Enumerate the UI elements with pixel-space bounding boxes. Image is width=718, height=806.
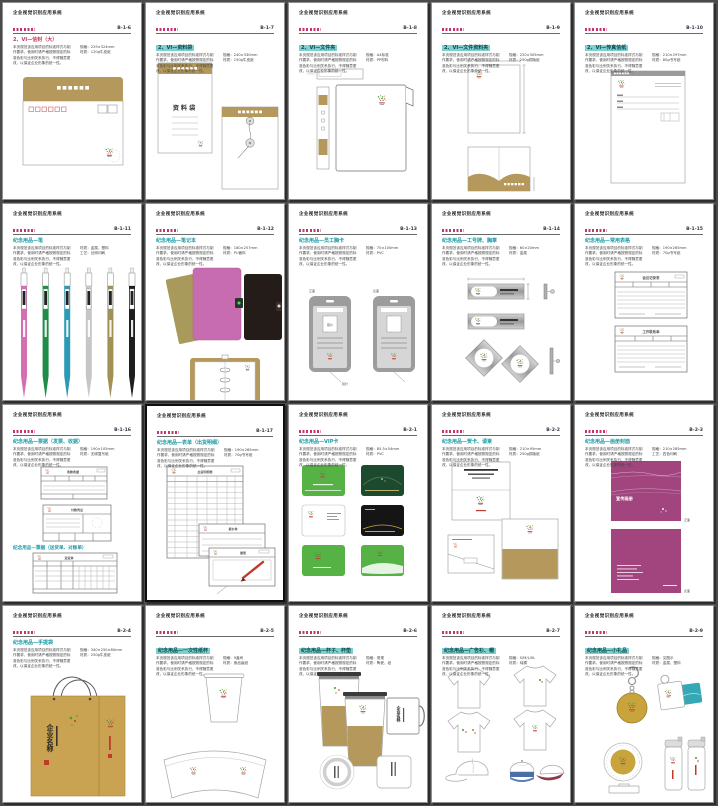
page-header: 企业视觉识别应用系统B-1-11纪念用品—笔本页规范该应用项目的标准样式与制作要… [3,204,141,268]
page-code: B-1-10 [686,26,703,31]
front-label: 正面 [684,518,690,522]
section-dots [585,28,607,31]
manual-title: 企业视觉识别应用系统 [299,211,417,217]
form3-title: 便笺 [240,550,246,555]
page-header: 企业视觉识别应用系统B-2-7纪念用品—广告衫、帽本页规范该应用项目的标准样式与… [432,606,570,678]
manual-page[interactable]: 企业视觉识别应用系统B-1-16纪念用品—票据（发票、收据）本页规范该应用项目的… [2,404,142,602]
page-title: 2、VI—文件夹 [299,45,337,51]
spec-line: 材质：PVC [366,251,398,257]
manual-page[interactable]: 企业视觉识别应用系统B-1-82、VI—文件夹本页规范该应用项目的标准样式与制作… [288,2,428,200]
receipt2-title: 付款凭证 [71,507,83,512]
header-rule [299,33,417,34]
spec-line: 材质：PP材料 [366,58,389,64]
section-dots [442,229,464,232]
manual-title: 企业视觉识别应用系统 [442,10,560,16]
mug-brand-text: 企业名称 [396,705,402,723]
bag-brand-text: 企业名称 [46,723,55,753]
receipt3-title: 送货单 [63,555,73,560]
manual-page[interactable]: 企业视觉识别应用系统B-1-72、VI—资料袋本页规范该应用项目的标准样式与制作… [145,2,285,200]
mock-letterhead [575,57,713,199]
page-title: 纪念用品—贺卡、请柬 [442,439,560,445]
photo-label: 照片 [327,322,333,327]
manual-title: 企业视觉识别应用系统 [156,211,274,217]
cover-title: 宣传画册 [616,495,634,502]
page-specs: 规格：190×265mm材质：70g书写纸 [224,448,259,470]
page-description: 本页规范该应用项目的标准样式与制作要求，使用时请严格按照规定的标准色彩与比例关系… [585,53,645,75]
spec-line: 材质：纯棉 [509,661,535,667]
mock-cups: 企业名称 [289,660,427,802]
header-rule [156,33,274,34]
header-rule [585,33,703,34]
section-dots [13,631,35,634]
manual-title: 企业视觉识别应用系统 [585,613,703,619]
page-code: B-2-2 [546,428,560,433]
page-specs: 规格：210×285mm工艺：四色印刷 [652,447,687,469]
page-title: 纪念用品—工号牌、胸章 [442,238,560,244]
page-title: 纪念用品—画册封面 [585,439,703,445]
page-code: B-1-12 [257,227,274,232]
mock-shopping-bag: 企业名称 [3,660,141,802]
section-dots [585,430,607,433]
spec-line: 材质：无碳复写纸 [80,452,115,458]
page-specs: 规格：190×105mm材质：无碳复写纸 [80,447,115,469]
manual-page[interactable]: 企业视觉识别应用系统B-2-5纪念用品—一次性纸杯本页规范该应用项目的标准样式与… [145,605,285,803]
manual-page[interactable]: 企业视觉识别应用系统B-1-102、VI—传真信纸本页规范该应用项目的标准样式与… [574,2,714,200]
section-dots [299,430,321,433]
page-header: 企业视觉识别应用系统B-1-72、VI—资料袋本页规范该应用项目的标准样式与制作… [146,3,284,75]
page-code: B-2-3 [689,428,703,433]
mock-paper-cup [146,660,284,802]
spec-line: 材质：80g书写纸 [652,58,687,64]
section-dots [156,229,178,232]
mock-brochure-covers: 宣传画册 正面 反面 [575,459,713,601]
table-title: 出货明细表 [197,469,213,474]
section-dots [585,229,607,232]
header-rule [299,636,417,637]
page-specs: 规格：210×95mm材质：250g铜版纸 [509,447,541,469]
page-header: 企业视觉识别应用系统B-2-2纪念用品—贺卡、请柬本页规范该应用项目的标准样式与… [432,405,570,469]
page-description: 本页规范该应用项目的标准样式与制作要求，使用时请严格按照规定的标准色彩与比例关系… [585,447,645,469]
mock-pocket-folder [432,57,570,199]
page-description: 本页规范该应用项目的标准样式与制作要求，使用时请严格按照规定的标准色彩与比例关系… [13,447,73,469]
page-title: 2、VI—文件资料夹 [442,45,490,51]
page-code: B-2-9 [689,629,703,634]
section-dots [13,28,35,31]
section-dots [442,631,464,634]
page-specs: 规格：220×305mm材质：250g铜版纸 [509,53,544,75]
manual-title: 企业视觉识别应用系统 [156,10,274,16]
page-code: B-2-4 [117,629,131,634]
page-specs: 规格：9盎司材质：食品级纸 [223,656,248,678]
manual-title: 企业视觉识别应用系统 [442,211,560,217]
page-code: B-1-7 [260,26,274,31]
page-code: B-2-5 [260,629,274,634]
header-rule [442,33,560,34]
receipt1-title: 收款收据 [67,469,79,474]
header-rule [157,436,273,437]
mock-folder [289,57,427,199]
page-specs: 规格：210×297mm材质：80g书写纸 [652,53,687,75]
spec-line: 材质：金属、塑料 [652,661,681,667]
manual-page-selected[interactable]: 企业视觉识别应用系统B-1-17纪念用品—表单（出货明细）本页规范该应用项目的标… [145,404,285,602]
page-title: 纪念用品—一次性纸杯 [156,648,210,654]
manual-title: 企业视觉识别应用系统 [13,10,131,16]
page-header: 企业视觉识别应用系统B-2-3纪念用品—画册封面本页规范该应用项目的标准样式与制… [575,405,713,469]
mock-vip-cards [289,459,427,601]
manual-page[interactable]: 企业视觉识别应用系统B-1-92、VI—文件资料夹本页规范该应用项目的标准样式与… [431,2,571,200]
page-specs: 规格：190×265mm材质：70g书写纸 [652,246,687,268]
page-description: 本页规范该应用项目的标准样式与制作要求，使用时请严格按照规定的标准色彩与比例关系… [13,648,73,670]
manual-page[interactable]: 企业视觉识别应用系统B-2-7纪念用品—广告衫、帽本页规范该应用项目的标准样式与… [431,605,571,803]
form2-title: 报价单 [228,526,237,531]
page-header: 企业视觉识别应用系统B-1-12纪念用品—笔记本本页规范该应用项目的标准样式与制… [146,204,284,268]
page-title: 纪念用品—票据（发票、收据） [13,439,131,445]
section-dots [299,631,321,634]
spec-line: 工艺：丝网印刷 [80,251,109,257]
manual-title: 企业视觉识别应用系统 [299,10,417,16]
manual-page[interactable]: 企业视觉识别应用系统B-2-1纪念用品—VIP卡本页规范该应用项目的标准样式与制… [288,404,428,602]
page-title: 纪念用品—员工胸卡 [299,238,417,244]
manual-title: 企业视觉识别应用系统 [585,10,703,16]
page-header: 企业视觉识别应用系统B-1-13纪念用品—员工胸卡本页规范该应用项目的标准样式与… [289,204,427,268]
manual-page[interactable]: 企业视觉识别应用系统B-2-4纪念用品—手提袋本页规范该应用项目的标准样式与制作… [2,605,142,803]
mock-staff-badges: 正面 反面 照片 别针 [289,258,427,400]
spec-line: 材质：250g铜版纸 [509,452,541,458]
bag-label: 资料袋 [173,104,198,112]
manual-page[interactable]: 企业视觉识别应用系统B-1-15纪念用品—常用表格本页规范该应用项目的标准样式与… [574,203,714,401]
section-dots [13,430,35,433]
page-specs: 规格：S/M/L/XL材质：纯棉 [509,656,535,678]
section-dots [157,431,179,434]
page-header: 企业视觉识别应用系统B-1-82、VI—文件夹本页规范该应用项目的标准样式与制作… [289,3,427,75]
page-header: 企业视觉识别应用系统B-1-14纪念用品—工号牌、胸章本页规范该应用项目的标准样… [432,204,570,268]
page-specs: 规格：见图示材质：金属、塑料 [652,656,681,678]
page-header: 企业视觉识别应用系统B-1-62、VI—信封（大）本页规范该应用项目的标准样式与… [3,3,141,67]
page-specs: 规格：340×250×80mm材质：250g牛皮纸 [80,648,122,670]
manual-title: 企业视觉识别应用系统 [442,412,560,418]
mock-notebooks [146,258,284,400]
page-description: 本页规范该应用项目的标准样式与制作要求，使用时请严格按照规定的标准色彩与比例关系… [299,246,359,268]
page-code: B-1-11 [114,227,131,232]
page-header: 企业视觉识别应用系统B-2-6纪念用品—杯子、杯垫本页规范该应用项目的标准样式与… [289,606,427,678]
page-description: 本页规范该应用项目的标准样式与制作要求，使用时请严格按照规定的标准色彩与比例关系… [442,656,502,678]
page-description: 本页规范该应用项目的标准样式与制作要求，使用时请严格按照规定的标准色彩与比例关系… [299,656,359,678]
page-specs: 规格：70×100mm材质：PVC [366,246,398,268]
page-title: 2、VI—传真信纸 [585,45,628,51]
page-description: 本页规范该应用项目的标准样式与制作要求，使用时请严格按照规定的标准色彩与比例关系… [442,53,502,75]
spec-line: 材质：陶瓷、纸 [366,661,391,667]
page-specs: 规格：229×324mm材质：120g牛皮纸 [80,45,115,67]
page-header: 企业视觉识别应用系统B-1-92、VI—文件资料夹本页规范该应用项目的标准样式与… [432,3,570,75]
header-rule [442,234,560,235]
section-dots [156,28,178,31]
spec-line: 材质：70g书写纸 [652,251,687,257]
mock-document-bags: 资料袋 [146,57,284,199]
page-code: B-1-15 [686,227,703,232]
page-description: 本页规范该应用项目的标准样式与制作要求，使用时请严格按照规定的标准色彩与比例关系… [157,448,217,470]
section-dots [585,631,607,634]
page-title: 纪念用品—表单（出货明细） [157,440,273,446]
page-code: B-2-7 [546,629,560,634]
manual-title: 企业视觉识别应用系统 [13,613,131,619]
page-description: 本页规范该应用项目的标准样式与制作要求，使用时请严格按照规定的标准色彩与比例关系… [156,246,216,268]
manual-page[interactable]: 企业视觉识别应用系统B-1-13纪念用品—员工胸卡本页规范该应用项目的标准样式与… [288,203,428,401]
page-description: 本页规范该应用项目的标准样式与制作要求，使用时请严格按照规定的标准色彩与比例关系… [13,45,73,67]
page-title: 纪念用品—杯子、杯垫 [299,648,353,654]
page-code: B-1-6 [117,26,131,31]
mock-detail-table: 出货明细表 报价单 便笺 [147,460,285,602]
page-description: 本页规范该应用项目的标准样式与制作要求，使用时请严格按照规定的标准色彩与比例关系… [442,447,502,469]
page-code: B-2-6 [403,629,417,634]
page-code: B-1-16 [114,428,131,433]
page-description: 本页规范该应用项目的标准样式与制作要求，使用时请严格按照规定的标准色彩与比例关系… [156,53,216,75]
section-dots [156,631,178,634]
mock-pens [3,258,141,400]
page-title: 纪念用品—手提袋 [13,640,131,646]
manual-title: 企业视觉识别应用系统 [585,412,703,418]
page-specs: 规格：240×330mm材质：150g牛皮纸 [223,53,258,75]
header-rule [13,234,131,235]
manual-page[interactable]: 企业视觉识别应用系统B-1-62、VI—信封（大）本页规范该应用项目的标准样式与… [2,2,142,200]
header-rule [156,234,274,235]
page-specs: 材质：金属、塑料工艺：丝网印刷 [80,246,109,268]
spec-line: 材质：120g牛皮纸 [80,50,115,56]
manual-page[interactable]: 企业视觉识别应用系统B-2-3纪念用品—画册封面本页规范该应用项目的标准样式与制… [574,404,714,602]
header-rule [299,234,417,235]
page-description: 本页规范该应用项目的标准样式与制作要求，使用时请严格按照规定的标准色彩与比例关系… [585,246,645,268]
manual-title: 企业视觉识别应用系统 [442,613,560,619]
header-rule [13,636,131,637]
section-dots [299,28,321,31]
manual-title: 企业视觉识别应用系统 [13,412,131,418]
manual-page[interactable]: 企业视觉识别应用系统B-2-9纪念用品—小礼品本页规范该应用项目的标准样式与制作… [574,605,714,803]
header-rule [13,33,131,34]
manual-title: 企业视觉识别应用系统 [299,613,417,619]
spec-line: 材质：食品级纸 [223,661,248,667]
spec-line: 工艺：四色印刷 [652,452,687,458]
mock-gifts [575,660,713,802]
manual-page[interactable]: 企业视觉识别应用系统B-1-12纪念用品—笔记本本页规范该应用项目的标准样式与制… [145,203,285,401]
page-code: B-1-9 [546,26,560,31]
form1-title: 会议记录表 [643,275,661,280]
page-description: 本页规范该应用项目的标准样式与制作要求，使用时请严格按照规定的标准色彩与比例关系… [13,246,73,268]
section-dots [442,28,464,31]
header-rule [585,435,703,436]
mock-shirts-caps [432,660,570,802]
manual-title: 企业视觉识别应用系统 [156,613,274,619]
page-header: 企业视觉识别应用系统B-1-17纪念用品—表单（出货明细）本页规范该应用项目的标… [147,406,283,470]
page-title: 纪念用品—笔 [13,238,131,244]
header-rule [13,435,131,436]
mock-greeting-cards [432,459,570,601]
page-code: B-1-14 [543,227,560,232]
page-code: B-1-8 [403,26,417,31]
manual-grid: 企业视觉识别应用系统B-1-62、VI—信封（大）本页规范该应用项目的标准样式与… [0,0,718,805]
form2-title: 工作联系单 [643,329,661,334]
section-dots [442,430,464,433]
second-section-title: 纪念用品—票据（送货单、对账单） [13,544,87,551]
mock-pin-badges [432,258,570,400]
header-rule [442,435,560,436]
page-title: 纪念用品—常用表格 [585,238,703,244]
page-specs: 规格：60×20mm材质：金属 [509,246,539,268]
back-label: 反面 [373,288,379,293]
spec-line: 材质：PU面料 [223,251,258,257]
page-header: 企业视觉识别应用系统B-1-15纪念用品—常用表格本页规范该应用项目的标准样式与… [575,204,713,268]
page-header: 企业视觉识别应用系统B-1-102、VI—传真信纸本页规范该应用项目的标准样式与… [575,3,713,75]
page-header: 企业视觉识别应用系统B-2-4纪念用品—手提袋本页规范该应用项目的标准样式与制作… [3,606,141,670]
page-description: 本页规范该应用项目的标准样式与制作要求，使用时请严格按照规定的标准色彩与比例关系… [299,447,359,469]
page-title: 纪念用品—笔记本 [156,238,274,244]
page-header: 企业视觉识别应用系统B-2-5纪念用品—一次性纸杯本页规范该应用项目的标准样式与… [146,606,284,678]
spec-line: 材质：250g牛皮纸 [80,653,122,659]
mock-envelope-large [3,57,141,199]
page-title: 纪念用品—VIP卡 [299,439,417,445]
page-specs: 规格：85.5×54mm材质：PVC [366,447,399,469]
manual-title: 企业视觉识别应用系统 [585,211,703,217]
page-description: 本页规范该应用项目的标准样式与制作要求，使用时请严格按照规定的标准色彩与比例关系… [156,656,216,678]
manual-title: 企业视觉识别应用系统 [157,413,273,419]
back-label: 反面 [684,588,690,593]
page-specs: 规格：常规材质：陶瓷、纸 [366,656,391,678]
manual-page[interactable]: 企业视觉识别应用系统B-2-6纪念用品—杯子、杯垫本页规范该应用项目的标准样式与… [288,605,428,803]
header-rule [585,636,703,637]
page-description: 本页规范该应用项目的标准样式与制作要求，使用时请严格按照规定的标准色彩与比例关系… [442,246,502,268]
page-specs: 规格：180×257mm材质：PU面料 [223,246,258,268]
page-code: B-1-17 [256,429,273,434]
section-dots [13,229,35,232]
spec-line: 材质：70g书写纸 [224,453,259,459]
spec-line: 材质：金属 [509,251,539,257]
page-code: B-2-1 [403,428,417,433]
manual-page[interactable]: 企业视觉识别应用系统B-1-14纪念用品—工号牌、胸章本页规范该应用项目的标准样… [431,203,571,401]
page-description: 本页规范该应用项目的标准样式与制作要求，使用时请严格按照规定的标准色彩与比例关系… [299,53,359,75]
page-header: 企业视觉识别应用系统B-2-1纪念用品—VIP卡本页规范该应用项目的标准样式与制… [289,405,427,469]
header-rule [442,636,560,637]
spec-line: 材质：250g铜版纸 [509,58,544,64]
page-code: B-1-13 [400,227,417,232]
page-title: 纪念用品—广告衫、帽 [442,648,496,654]
page-specs: 规格：A4标准材质：PP材料 [366,53,389,75]
mock-forms: 会议记录表 工作联系单 [575,258,713,400]
manual-page[interactable]: 企业视觉识别应用系统B-1-11纪念用品—笔本页规范该应用项目的标准样式与制作要… [2,203,142,401]
page-title: 纪念用品—小礼品 [585,648,629,654]
section-dots [299,229,321,232]
page-header: 企业视觉识别应用系统B-1-16纪念用品—票据（发票、收据）本页规范该应用项目的… [3,405,141,469]
front-label: 正面 [309,289,315,293]
manual-title: 企业视觉识别应用系统 [299,412,417,418]
header-rule [585,234,703,235]
mock-receipts: 收款收据 付款凭证 纪念用品—票据（送货单、对账单） 送货单 [3,459,141,601]
page-header: 企业视觉识别应用系统B-2-9纪念用品—小礼品本页规范该应用项目的标准样式与制作… [575,606,713,678]
page-title: 2、VI—资料袋 [156,45,194,51]
header-rule [156,636,274,637]
manual-title: 企业视觉识别应用系统 [13,211,131,217]
spec-line: 材质：PVC [366,452,399,458]
page-description: 本页规范该应用项目的标准样式与制作要求，使用时请严格按照规定的标准色彩与比例关系… [585,656,645,678]
page-title: 2、VI—信封（大） [13,37,131,43]
pin-label: 别针 [342,381,348,386]
header-rule [299,435,417,436]
manual-page[interactable]: 企业视觉识别应用系统B-2-2纪念用品—贺卡、请柬本页规范该应用项目的标准样式与… [431,404,571,602]
spec-line: 材质：150g牛皮纸 [223,58,258,64]
